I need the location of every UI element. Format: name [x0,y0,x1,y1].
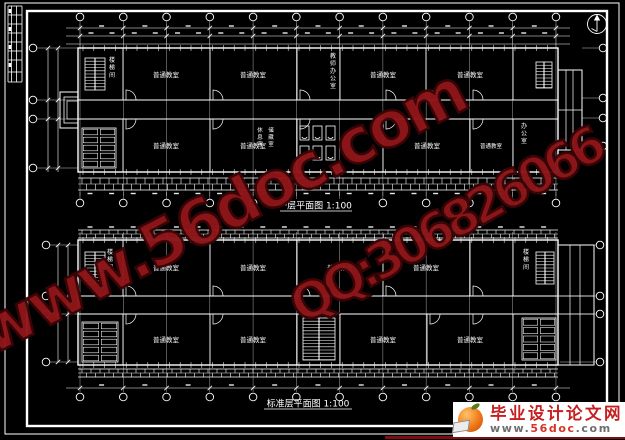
url-suffix: .com [576,422,612,435]
room-label: 普通教室 [370,70,397,79]
room-label: 普通教室 [240,263,267,272]
north-arrow-icon [588,15,607,34]
room-label-vertical: 楼梯间 [109,56,115,79]
title-block-table [8,6,22,82]
site-name: 毕业设计论文网 [490,405,623,422]
room-label: 普通教室 [153,335,180,344]
room-label-vertical: 教师办公室 [330,52,336,90]
url-prefix: www. [490,422,530,435]
room-label-vertical: 休息室 [257,126,263,148]
paper-icon [452,420,470,434]
room-label: 普通教室 [370,335,397,344]
site-url[interactable]: www.56doc.com [490,423,623,434]
room-label-vertical: 办公室 [521,122,527,145]
site-logo[interactable]: 毕业设计论文网 www.56doc.com [453,402,625,437]
room-label: 普通教室 [240,335,267,344]
room-label: 普通教室 [240,70,267,79]
room-label-vertical: 楼梯间 [523,248,529,271]
bottom-plan-title: 标准层平面图 1:100 [267,398,350,410]
leaf-icon [470,403,480,411]
drawing-sheet: 普通教室普通教室普通教室普通教室普通教室普通教室普通教室普通教室教师办公室楼梯间… [0,0,625,440]
cad-floor-plan-drawing: 普通教室普通教室普通教室普通教室普通教室普通教室普通教室普通教室教师办公室楼梯间… [0,0,625,440]
orange-fruit-icon [458,407,483,432]
room-label: 普通教室 [480,142,503,150]
room-label: 普通教室 [153,141,180,150]
room-label: 普通教室 [457,70,484,79]
room-label: 普通教室 [153,70,180,79]
room-label: 普通教室 [457,335,484,344]
url-mid: 56doc [530,422,575,435]
